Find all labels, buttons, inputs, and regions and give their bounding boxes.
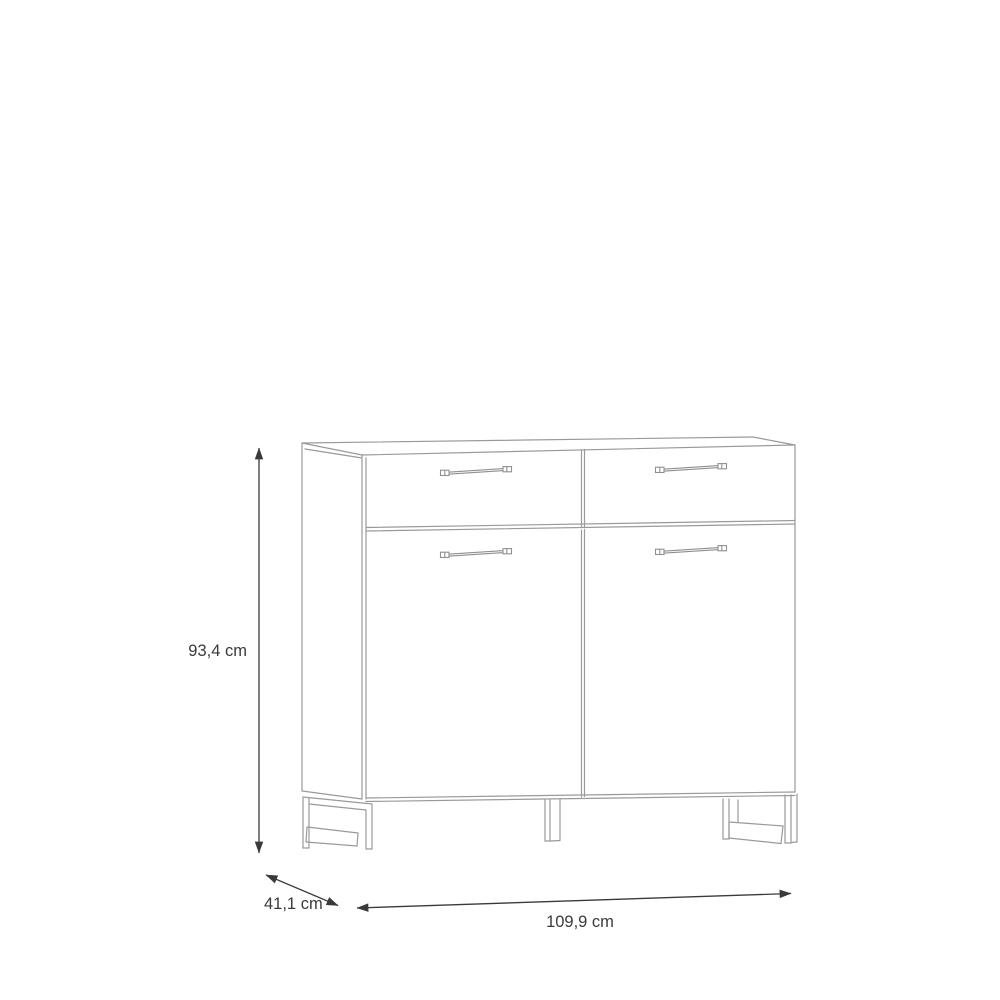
width-dimension-label: 109,9 cm <box>546 913 614 931</box>
drawer-handle-right <box>656 464 727 473</box>
cabinet-front-edges <box>366 445 795 802</box>
height-dimension-label: 93,4 cm <box>188 642 247 660</box>
handles <box>441 464 727 558</box>
drawer-center-divider <box>582 450 585 528</box>
door-handle-right <box>656 546 727 555</box>
right-sled-leg <box>723 794 797 844</box>
sideboard-line-drawing: 93,4 cm 41,1 cm 109,9 cm <box>0 0 1000 1000</box>
middle-support-leg <box>545 800 560 842</box>
legs <box>303 794 797 849</box>
dimension-annotations: 93,4 cm 41,1 cm 109,9 cm <box>188 448 791 931</box>
drawer-handle-left <box>441 467 512 476</box>
cabinet-top-panel <box>302 437 795 458</box>
cabinet-left-side-panel <box>302 443 366 799</box>
door-handle-left <box>441 549 512 558</box>
left-sled-leg <box>303 797 372 849</box>
door-center-divider <box>582 530 585 798</box>
drawer-door-divider <box>366 521 795 532</box>
width-dimension-arrow <box>357 894 791 909</box>
depth-dimension-label: 41,1 cm <box>264 895 323 913</box>
dimension-diagram: 93,4 cm 41,1 cm 109,9 cm <box>0 0 1000 1000</box>
cabinet-body <box>302 437 795 802</box>
